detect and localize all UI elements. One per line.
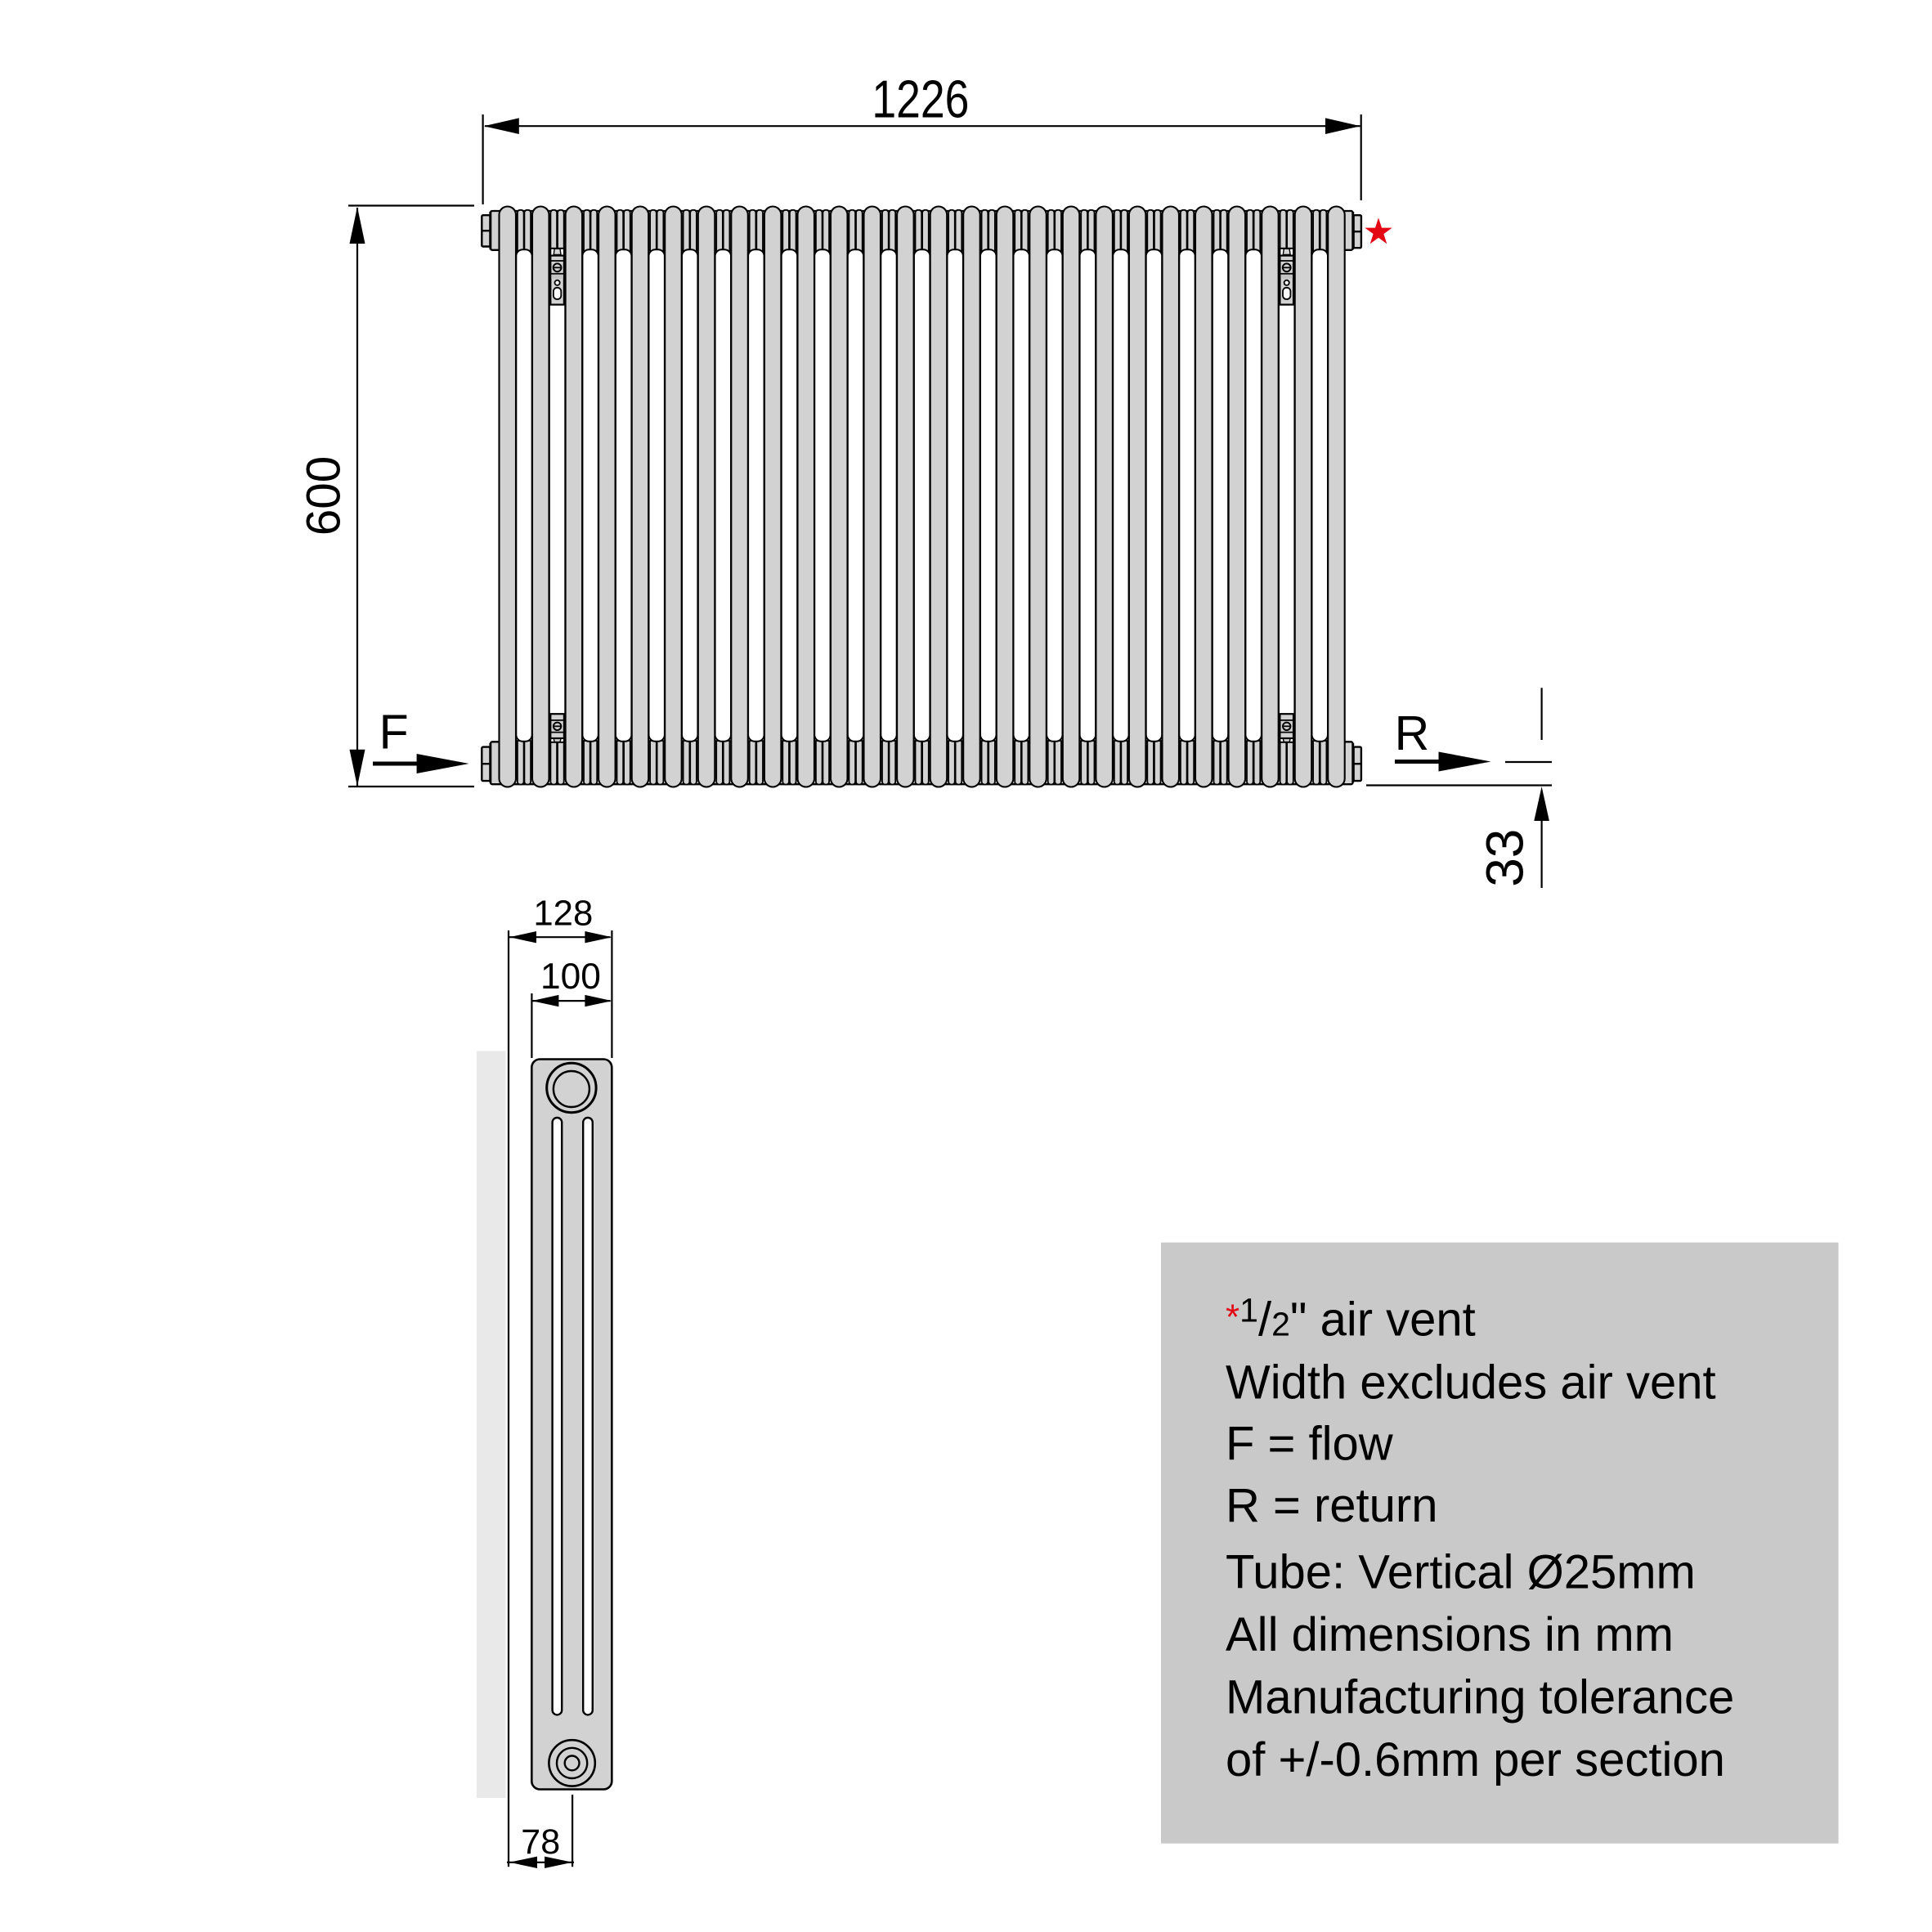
svg-text:R: R	[1395, 706, 1430, 760]
svg-text:600: 600	[297, 456, 350, 536]
svg-text:All dimensions in mm: All dimensions in mm	[1226, 1608, 1674, 1661]
svg-text:*1/2" air vent: *1/2" air vent	[1226, 1292, 1476, 1347]
svg-text:of +/-0.6mm per section: of +/-0.6mm per section	[1226, 1733, 1725, 1786]
svg-text:1226: 1226	[872, 69, 969, 129]
svg-text:R = return: R = return	[1226, 1479, 1438, 1532]
svg-text:F: F	[379, 706, 409, 760]
svg-text:33: 33	[1476, 829, 1535, 887]
svg-text:128: 128	[533, 893, 593, 933]
svg-text:F = flow: F = flow	[1226, 1417, 1394, 1470]
svg-text:Tube: Vertical Ø25mm: Tube: Vertical Ø25mm	[1226, 1545, 1696, 1598]
svg-text:100: 100	[540, 957, 601, 997]
svg-text:78: 78	[521, 1822, 560, 1862]
svg-text:Manufacturing tolerance: Manufacturing tolerance	[1226, 1670, 1734, 1724]
svg-text:Width excludes air vent: Width excludes air vent	[1226, 1356, 1716, 1410]
